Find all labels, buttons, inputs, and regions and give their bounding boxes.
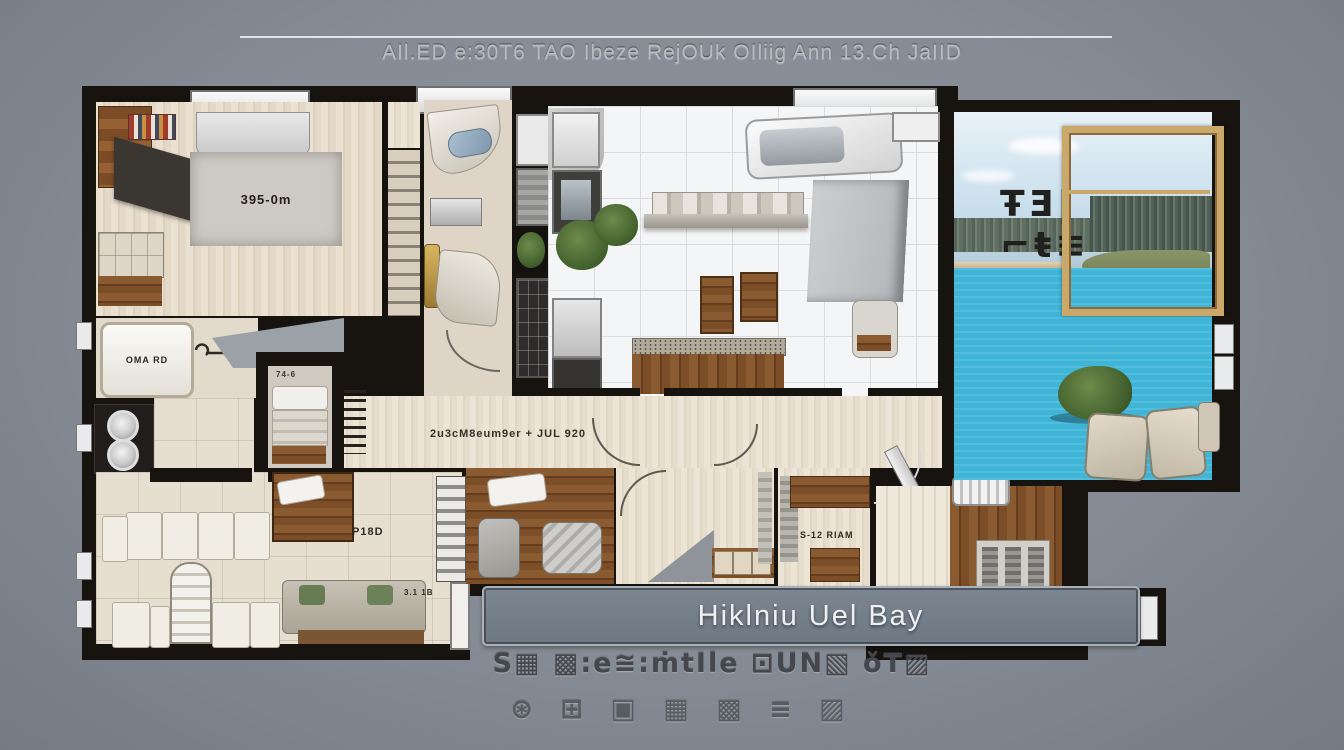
shelf-rack-2 — [740, 272, 778, 322]
bench-cushion-1 — [714, 551, 733, 575]
elevator-floor-wood — [272, 446, 326, 464]
oven-door — [561, 180, 591, 220]
rug-panel-3 — [1028, 547, 1044, 589]
hallroom-texture-strip — [758, 472, 772, 564]
master-rug-label: 395-0m — [241, 192, 292, 207]
cooktop-unit — [552, 298, 602, 358]
laundry-cabinet — [94, 404, 154, 474]
dresser-wood — [98, 276, 162, 306]
kitchen-plant-2 — [594, 204, 638, 246]
cloud-2 — [962, 170, 1014, 182]
elevator-label: 74-6 — [276, 370, 296, 379]
name-banner: Hiklniu Uel Bay — [482, 586, 1140, 646]
utility-plant-box — [514, 228, 548, 272]
bench-cushion-2 — [733, 551, 752, 575]
generated-floorplan-image: AIl.ED e:30T6 TAO Ibeze RejOUk OIliig An… — [0, 0, 1344, 750]
utility-appliance-gray — [516, 168, 550, 226]
left-window-stub-2 — [76, 424, 92, 452]
footer-line-2: ⊛ ⊞ ▣ ▦ ▩ ≡ ▨ — [372, 694, 992, 725]
dresser-grid — [98, 232, 164, 278]
sofa-module-3 — [198, 512, 234, 560]
footer-line-1: S▦ ▩:e≅:ṁtIle ⊡UN▧ ǒT▨ — [392, 648, 1032, 679]
stair-railing — [344, 390, 366, 454]
master-rug: 395-0m — [190, 152, 342, 246]
wall-shelf — [644, 214, 808, 228]
green-pillow-1 — [299, 585, 325, 605]
banner-right-window — [1140, 596, 1158, 640]
title-hairline — [240, 36, 1112, 38]
hallway-label: 2u3cM8eum9er + JUL 920 — [430, 428, 586, 440]
sofa-module-1 — [126, 512, 162, 560]
daybed-pillow — [276, 474, 325, 506]
stair-landing — [388, 102, 420, 148]
master-bed — [196, 112, 310, 156]
daybed — [272, 472, 354, 542]
bedroom2-cushion — [542, 522, 602, 574]
washer-door-2 — [107, 439, 139, 471]
sofa-module-2 — [162, 512, 198, 560]
cushion-row-2 — [150, 606, 170, 648]
side-shelf-wood — [857, 335, 891, 351]
living-door-label: 3.1 1B — [404, 588, 434, 597]
utility-appliance-dark — [516, 278, 550, 378]
bar-table — [745, 112, 904, 180]
bathtub: OMA RD — [100, 322, 194, 398]
plant-icon — [517, 232, 545, 268]
wood-room-radiator — [952, 476, 1010, 506]
bar-table-inner — [759, 126, 845, 166]
left-window-stub-4 — [76, 600, 92, 628]
elevator-bed-body — [272, 410, 328, 446]
rug-panel-1 — [982, 547, 998, 589]
page-title: AIl.ED e:30T6 TAO Ibeze RejOUk OIliig An… — [0, 41, 1344, 65]
pool-sofa-1 — [1084, 412, 1150, 482]
elevator-bed-pillow — [272, 386, 328, 410]
arch-chair — [170, 562, 212, 644]
living-door — [450, 582, 470, 650]
living-room-floor-upper — [154, 398, 254, 474]
shelf-items — [652, 192, 804, 216]
books-row — [128, 114, 176, 140]
cushion-row-4 — [250, 602, 280, 648]
gold-window-mullion — [1062, 190, 1210, 194]
right-window-stub-1 — [1214, 324, 1234, 354]
green-pillow-2 — [367, 585, 393, 605]
banner-text: Hiklniu Uel Bay — [698, 600, 925, 633]
sofa-chaise — [102, 516, 128, 562]
gold-window-frame — [1062, 126, 1224, 316]
left-window-stub-3 — [76, 552, 92, 580]
living-wall-stub-1 — [150, 468, 252, 482]
kitchen-partition — [807, 180, 909, 302]
bedroom2-chair — [478, 518, 520, 578]
cushion-row-3 — [212, 602, 250, 648]
elevator-interior: 74-6 — [268, 366, 332, 468]
washer-door-1 — [107, 410, 139, 442]
staircase — [388, 150, 420, 316]
fridge — [552, 112, 600, 168]
bar-cabinet — [892, 112, 940, 142]
utility-appliance-white — [516, 114, 550, 166]
side-shelf — [852, 300, 898, 358]
rug-panel-2 — [1005, 547, 1021, 589]
study-desk — [810, 548, 860, 582]
sofa-module-4 — [234, 512, 270, 560]
kitchen-island — [632, 338, 784, 394]
bathroom-label: OMA RD — [126, 355, 168, 365]
green-sofa-wood-base — [298, 630, 424, 644]
living-label: P18D — [352, 526, 384, 538]
pool-sofa-3 — [1198, 402, 1220, 452]
bath-shelf — [430, 198, 482, 226]
cushion-row-1 — [112, 602, 150, 648]
shelf-rack-1 — [700, 276, 734, 334]
left-window-stub-1 — [76, 322, 92, 350]
study-cabinet — [790, 476, 870, 508]
bedroom2-side-cabinet — [436, 476, 466, 582]
right-window-stub-2 — [1214, 356, 1234, 390]
study-label: S-12 RIAM — [800, 530, 854, 540]
